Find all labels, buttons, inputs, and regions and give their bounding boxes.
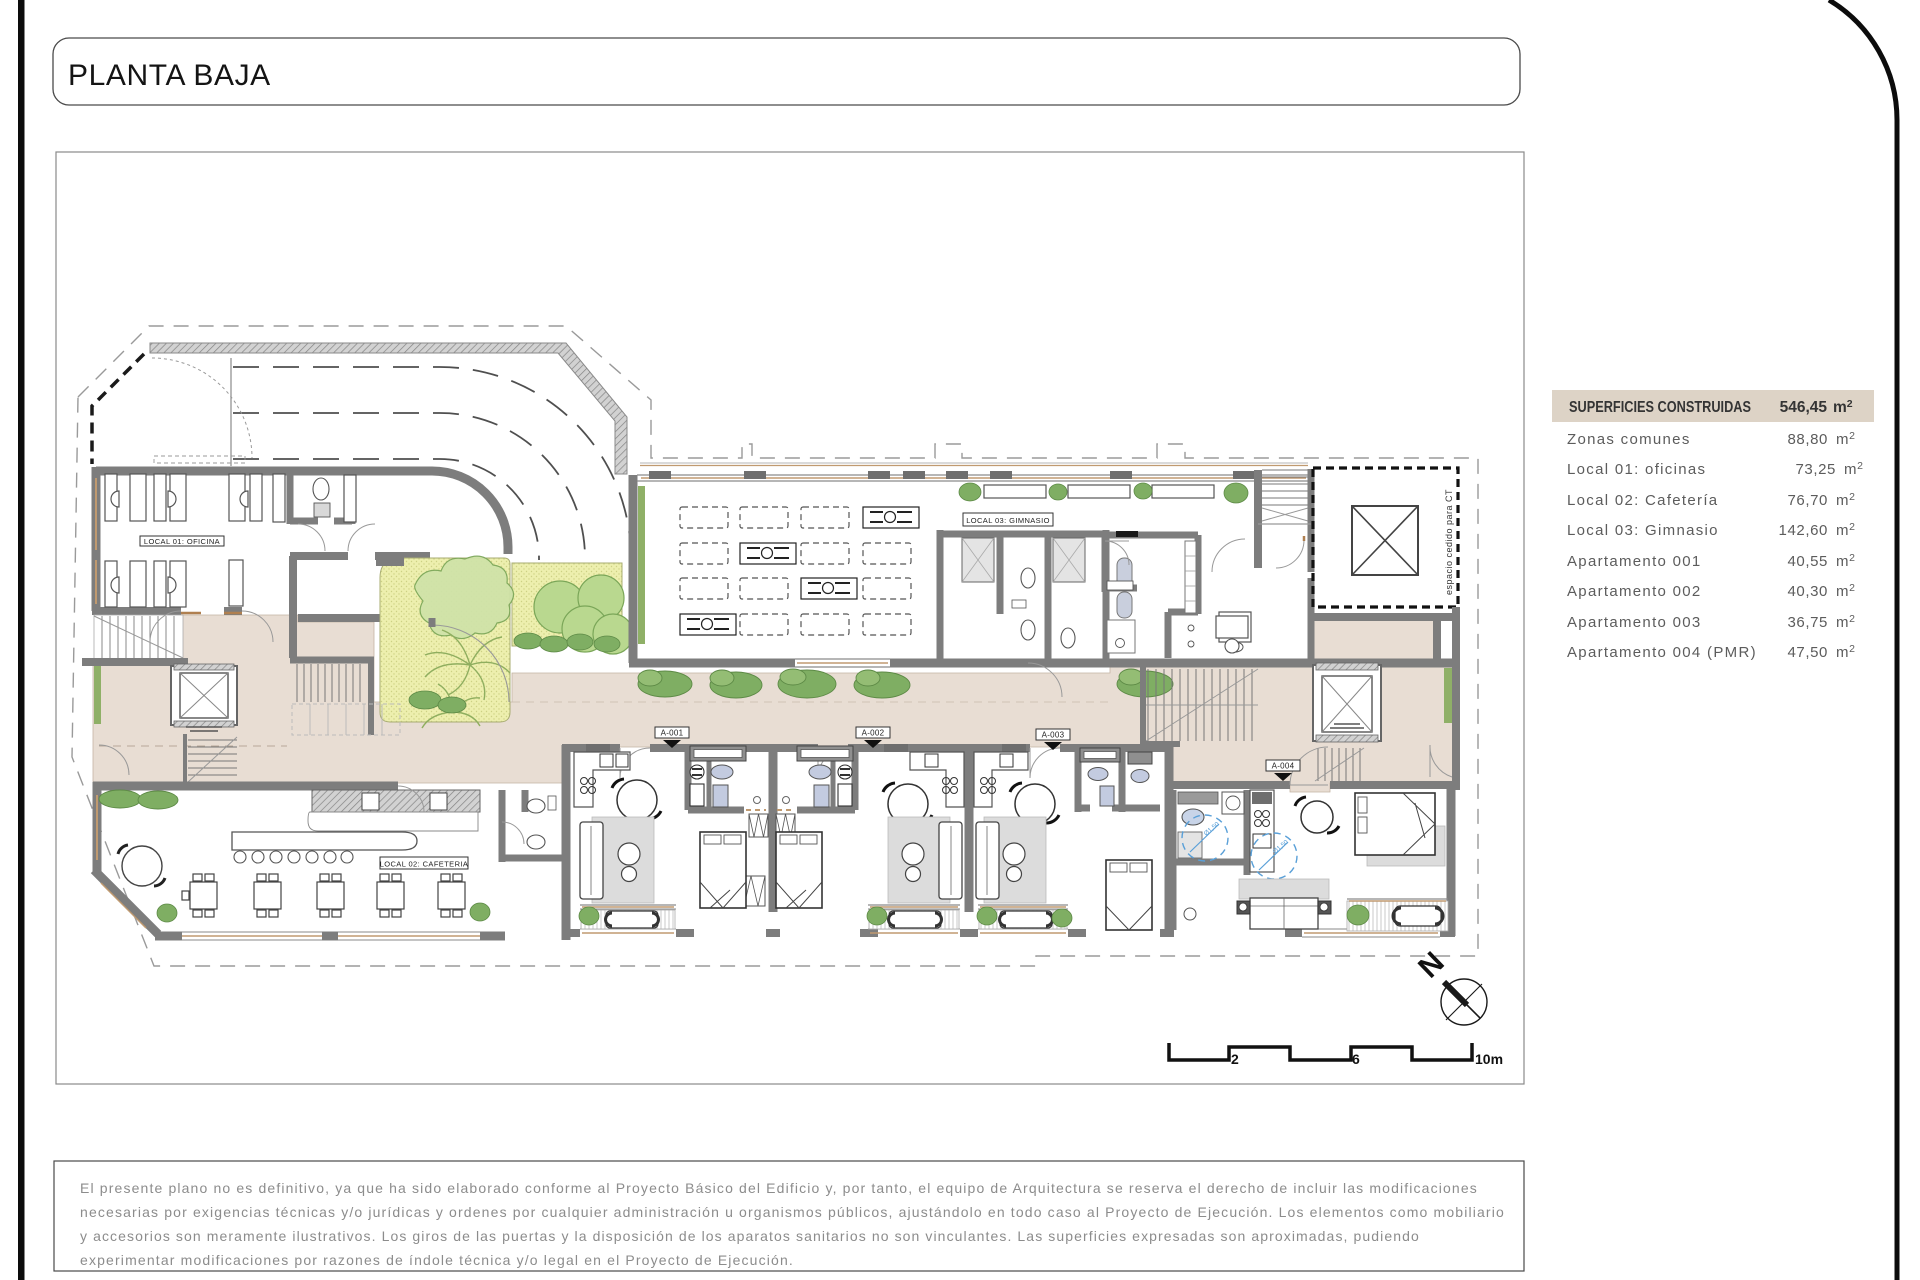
svg-text:y accesorios son meramente ilu: y accesorios son meramente ilustrativos.… xyxy=(80,1228,1419,1244)
svg-text:A-003: A-003 xyxy=(1042,731,1065,740)
svg-text:LOCAL 03: GIMNASIO: LOCAL 03: GIMNASIO xyxy=(966,516,1050,525)
svg-text:A-001: A-001 xyxy=(661,729,684,738)
svg-text:36,75: 36,75 xyxy=(1787,614,1828,631)
svg-text:Apartamento 002: Apartamento 002 xyxy=(1567,583,1702,600)
svg-text:73,25: 73,25 xyxy=(1795,461,1836,478)
svg-text:Local 01: oficinas: Local 01: oficinas xyxy=(1567,461,1706,478)
svg-text:A-002: A-002 xyxy=(862,729,885,738)
svg-text:A-004: A-004 xyxy=(1272,762,1295,771)
svg-text:88,80: 88,80 xyxy=(1787,431,1828,448)
svg-text:10m: 10m xyxy=(1475,1051,1503,1067)
svg-text:LOCAL 02: CAFETERIA: LOCAL 02: CAFETERIA xyxy=(380,860,469,869)
svg-text:PLANTA BAJA: PLANTA BAJA xyxy=(68,59,271,92)
svg-text:experimentar modificaciones po: experimentar modificaciones por razones … xyxy=(80,1252,793,1268)
svg-text:necesarias por exigencias técn: necesarias por exigencias técnicas y/o j… xyxy=(80,1204,1504,1220)
svg-text:2: 2 xyxy=(1231,1051,1239,1067)
svg-text:546,45: 546,45 xyxy=(1780,399,1828,416)
svg-text:Local 02: Cafetería: Local 02: Cafetería xyxy=(1567,492,1718,509)
svg-text:40,55: 40,55 xyxy=(1787,553,1828,570)
svg-text:Local 03: Gimnasio: Local 03: Gimnasio xyxy=(1567,522,1719,539)
svg-text:SUPERFICIES CONSTRUIDAS: SUPERFICIES CONSTRUIDAS xyxy=(1569,399,1751,416)
svg-text:espacio cedido para CT: espacio cedido para CT xyxy=(1444,489,1454,595)
svg-text:47,50: 47,50 xyxy=(1787,644,1828,661)
svg-text:40,30: 40,30 xyxy=(1787,583,1828,600)
svg-text:Zonas comunes: Zonas comunes xyxy=(1567,431,1691,448)
svg-text:Apartamento 003: Apartamento 003 xyxy=(1567,614,1702,631)
svg-text:76,70: 76,70 xyxy=(1787,492,1828,509)
svg-text:6: 6 xyxy=(1352,1051,1360,1067)
svg-text:LOCAL 01: OFICINA: LOCAL 01: OFICINA xyxy=(144,537,220,546)
svg-text:142,60: 142,60 xyxy=(1779,522,1828,539)
svg-text:Apartamento 004 (PMR): Apartamento 004 (PMR) xyxy=(1567,644,1757,661)
svg-text:Apartamento 001: Apartamento 001 xyxy=(1567,553,1702,570)
svg-text:El presente plano no es defini: El presente plano no es definitivo, ya q… xyxy=(80,1180,1477,1196)
